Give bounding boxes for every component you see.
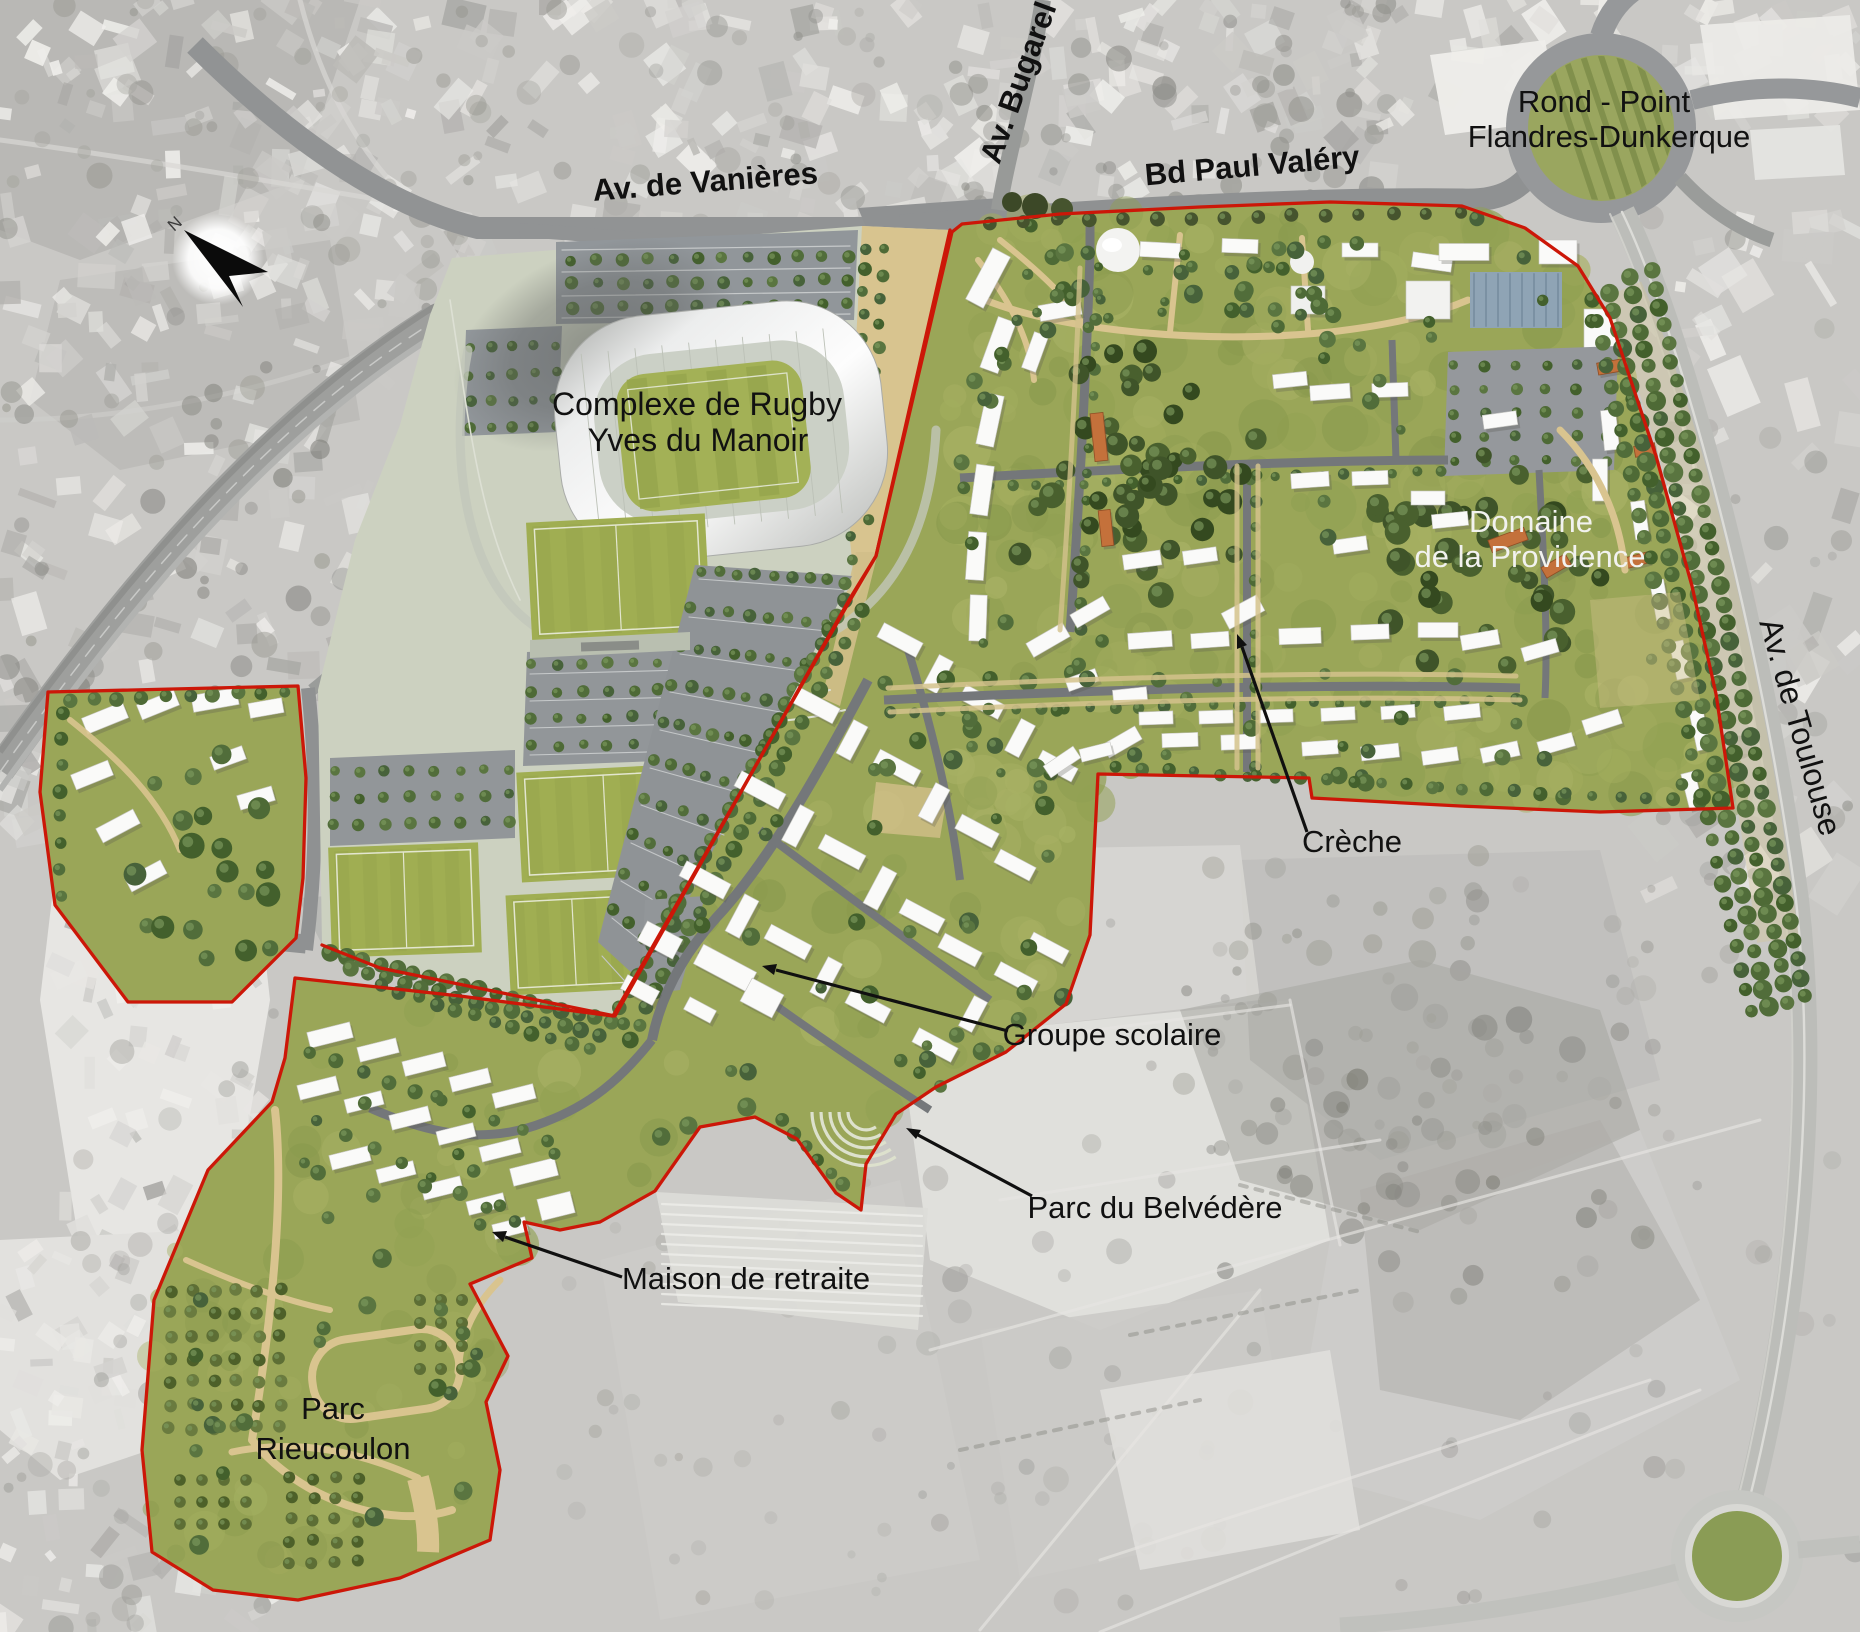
svg-text:de la Providence: de la Providence xyxy=(1415,539,1646,574)
svg-text:Crèche: Crèche xyxy=(1302,824,1402,859)
svg-text:Rieucoulon: Rieucoulon xyxy=(255,1431,410,1466)
svg-text:Maison de retraite: Maison de retraite xyxy=(622,1261,870,1296)
svg-text:Complexe de Rugby: Complexe de Rugby xyxy=(552,386,842,422)
svg-text:Yves du Manoir: Yves du Manoir xyxy=(588,422,809,458)
svg-text:Rond - Point: Rond - Point xyxy=(1518,84,1691,119)
svg-text:Domaine: Domaine xyxy=(1469,504,1593,539)
svg-text:Flandres-Dunkerque: Flandres-Dunkerque xyxy=(1468,119,1751,154)
svg-text:Parc: Parc xyxy=(301,1391,365,1426)
svg-text:Groupe scolaire: Groupe scolaire xyxy=(1003,1017,1222,1052)
svg-text:Parc du Belvédère: Parc du Belvédère xyxy=(1027,1190,1282,1225)
